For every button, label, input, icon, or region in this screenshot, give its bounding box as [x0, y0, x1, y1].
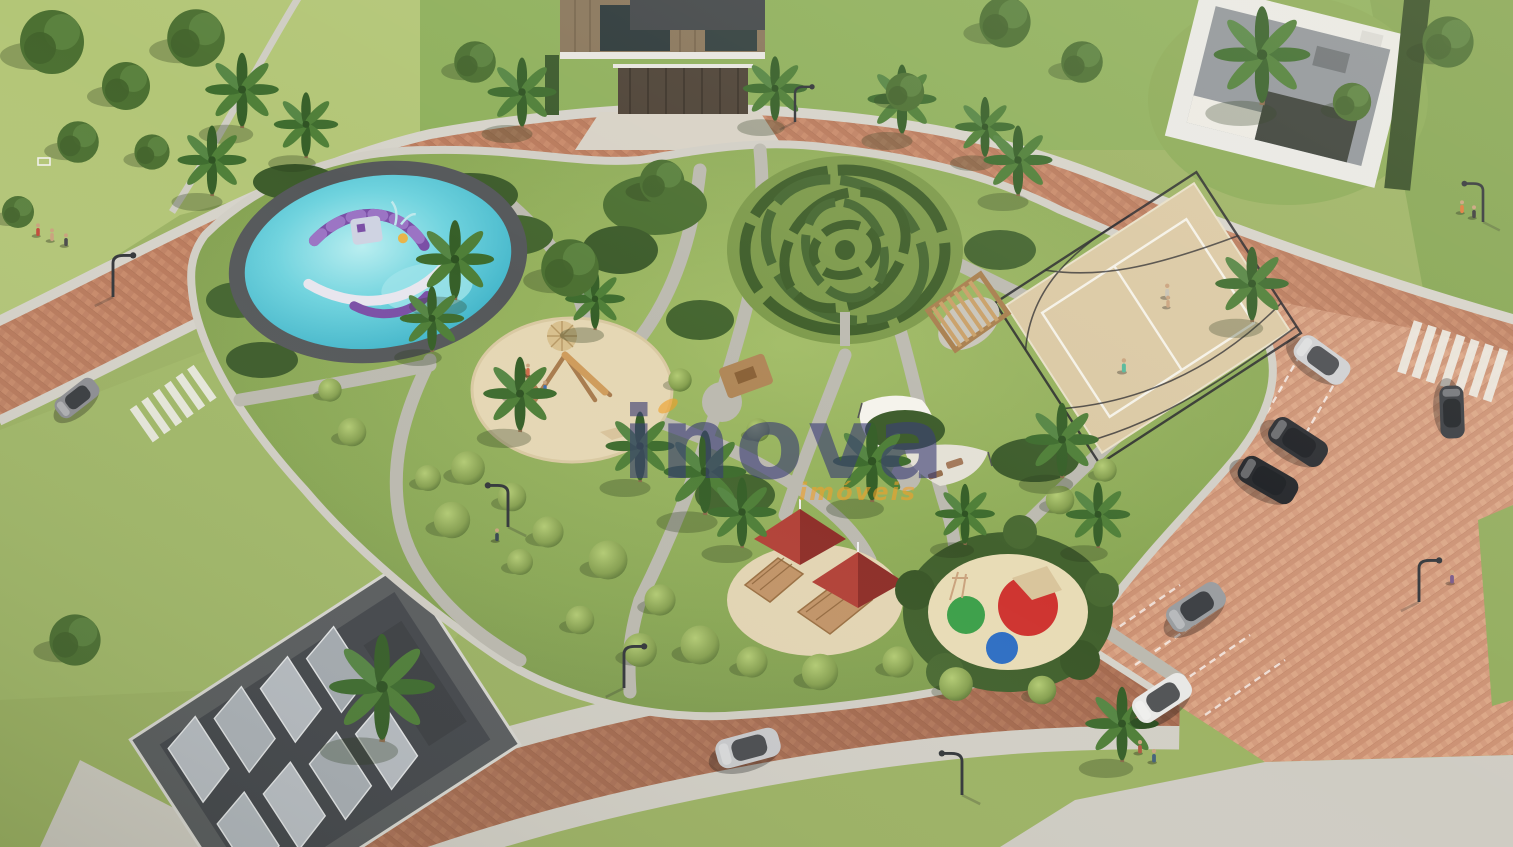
watermark: inova imóveis: [622, 385, 949, 506]
watermark-tagline-text: imóveis: [799, 478, 917, 506]
aerial-park-render: inova imóveis: [0, 0, 1513, 847]
render-canvas: inova imóveis: [0, 0, 1513, 847]
